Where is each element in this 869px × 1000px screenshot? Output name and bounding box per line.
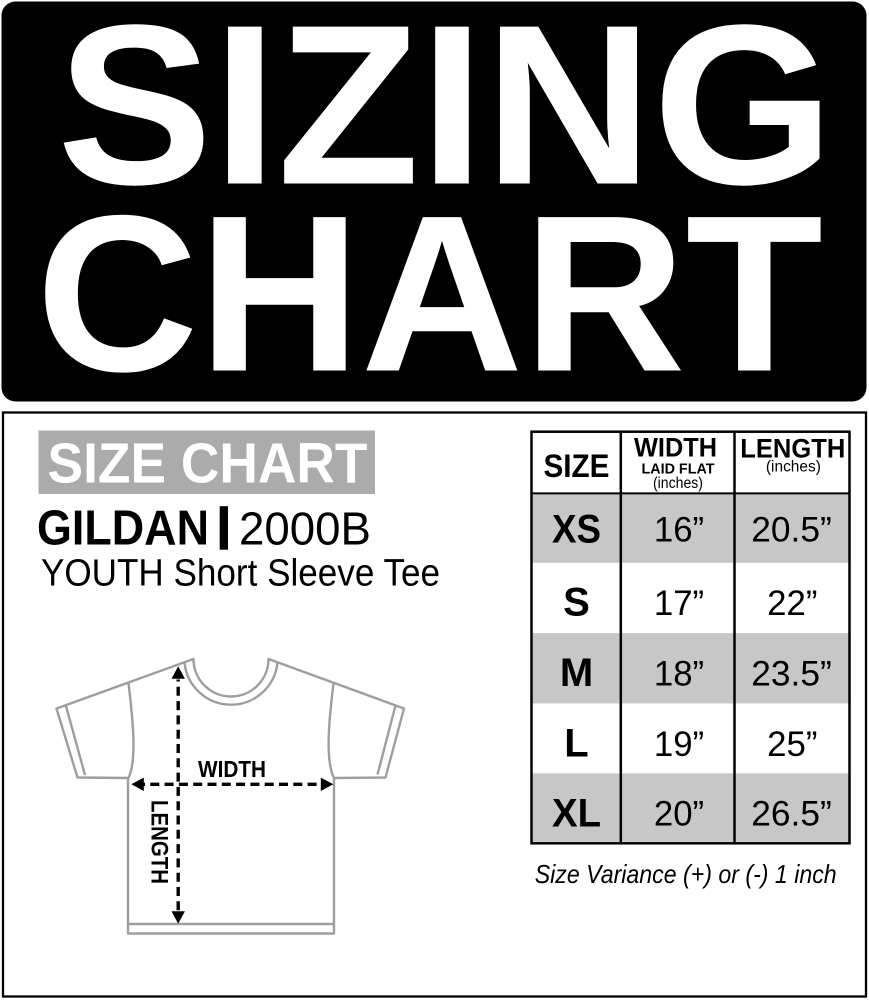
svg-text:SIZE CHART: SIZE CHART <box>48 432 368 496</box>
svg-text:LENGTH: LENGTH <box>145 800 172 884</box>
svg-text:WIDTH: WIDTH <box>198 756 266 782</box>
svg-text:S: S <box>563 581 590 625</box>
svg-text:YOUTH Short Sleeve Tee: YOUTH Short Sleeve Tee <box>41 553 440 595</box>
svg-text:20”: 20” <box>654 795 704 834</box>
svg-text:16”: 16” <box>654 511 704 550</box>
svg-text:26.5”: 26.5” <box>751 795 832 834</box>
svg-text:20.5”: 20.5” <box>751 511 832 550</box>
svg-text:17”: 17” <box>654 584 704 623</box>
svg-text:L: L <box>564 722 588 766</box>
svg-text:25”: 25” <box>767 725 817 764</box>
svg-text:XL: XL <box>552 791 601 835</box>
svg-text:WIDTH: WIDTH <box>634 433 717 463</box>
svg-text:23.5”: 23.5” <box>751 655 832 694</box>
svg-text:CHART: CHART <box>36 170 823 419</box>
svg-text:XS: XS <box>552 508 601 552</box>
svg-text:Size Variance (+) or (-) 1 inc: Size Variance (+) or (-) 1 inch <box>535 861 837 889</box>
svg-text:M: M <box>560 651 593 695</box>
svg-text:18”: 18” <box>654 655 704 694</box>
svg-text:GILDAN: GILDAN <box>37 502 209 556</box>
svg-text:22”: 22” <box>767 584 817 623</box>
svg-text:(inches): (inches) <box>653 475 703 492</box>
svg-text:2000B: 2000B <box>239 503 371 555</box>
svg-text:(inches): (inches) <box>766 459 821 476</box>
svg-text:SIZE: SIZE <box>544 448 610 484</box>
svg-text:19”: 19” <box>654 725 704 764</box>
